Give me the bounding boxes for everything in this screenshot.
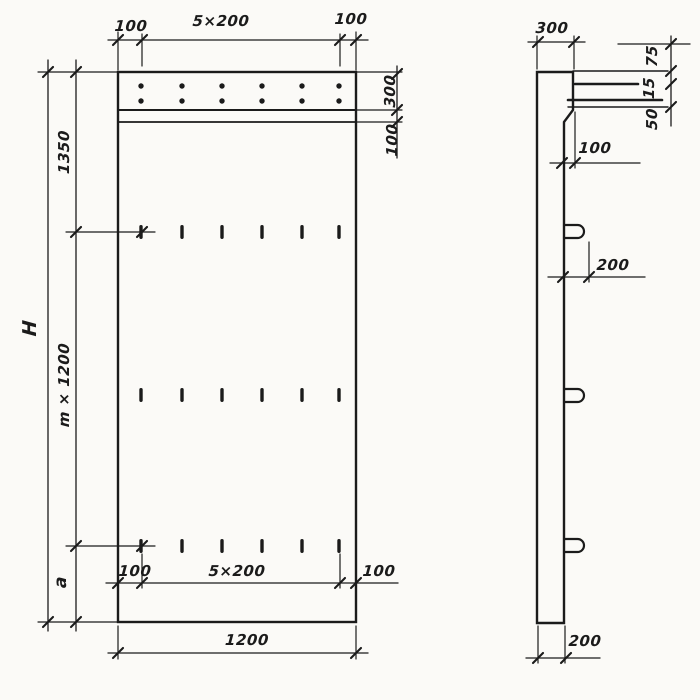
side-view [526,36,690,663]
anchor-dot [179,83,184,88]
anchor-dot [299,98,304,103]
dim-label-loop-projection: 200 [596,256,630,274]
dim-label-bottom-right: 100 [362,562,396,580]
slot [220,388,223,402]
dim-label-overall-width: 1200 [224,631,269,649]
slot [139,388,142,402]
dim-label-edge-bot: 50 [643,107,661,130]
slot [260,225,263,239]
panel-drawing [0,0,700,700]
anchor-dot [138,83,143,88]
dim-label-total-height: H [19,319,41,337]
slot [180,225,183,239]
slot [220,225,223,239]
slot [180,539,183,553]
dim-label-ledge-offset: 100 [578,139,612,157]
lifting-loop [564,389,584,402]
dim-label-zone-bottom: a [51,575,71,588]
anchor-dot [219,98,224,103]
anchor-dot [259,98,264,103]
dim-label-bottom-span: 5×200 [208,562,266,580]
slot [337,539,340,553]
anchor-dot [138,98,143,103]
slot [220,539,223,553]
anchor-dot [336,98,341,103]
dim-label-edge-mid: 15 [640,76,658,99]
anchor-dot [259,83,264,88]
slot [300,388,303,402]
dim-label-edge-top: 75 [643,44,661,67]
anchor-dot [179,98,184,103]
slot [337,225,340,239]
anchor-dot [219,83,224,88]
side-dim-ticks [533,37,676,663]
dim-label-side-top-thickness: 300 [535,19,569,37]
front-slot-rows [139,225,340,553]
slot [260,388,263,402]
slot [180,388,183,402]
dim-label-top-left: 100 [114,17,148,35]
dim-label-header-height: 300 [381,74,399,108]
dim-label-zone-top: 1350 [55,129,73,174]
dim-label-bottom-left: 100 [118,562,152,580]
front-anchor-dots [138,83,341,103]
slot [260,539,263,553]
dim-label-zone-middle: m × 1200 [55,342,73,428]
lifting-loop [564,225,584,238]
front-panel-outline [118,72,356,622]
drawing-canvas: 100 5×200 100 300 100 1350 H m × 1200 a … [0,0,700,700]
side-profile-outline [537,72,573,623]
dim-label-bottom-thickness: 200 [568,632,602,650]
slot [300,225,303,239]
slot [337,388,340,402]
dim-label-top-span: 5×200 [192,12,250,30]
anchor-dot [336,83,341,88]
anchor-dot [299,83,304,88]
dim-label-strip-height: 100 [383,123,401,157]
lifting-loop [564,539,584,552]
dim-label-top-right: 100 [334,10,368,28]
side-dimension-lines [526,36,690,658]
slot [300,539,303,553]
